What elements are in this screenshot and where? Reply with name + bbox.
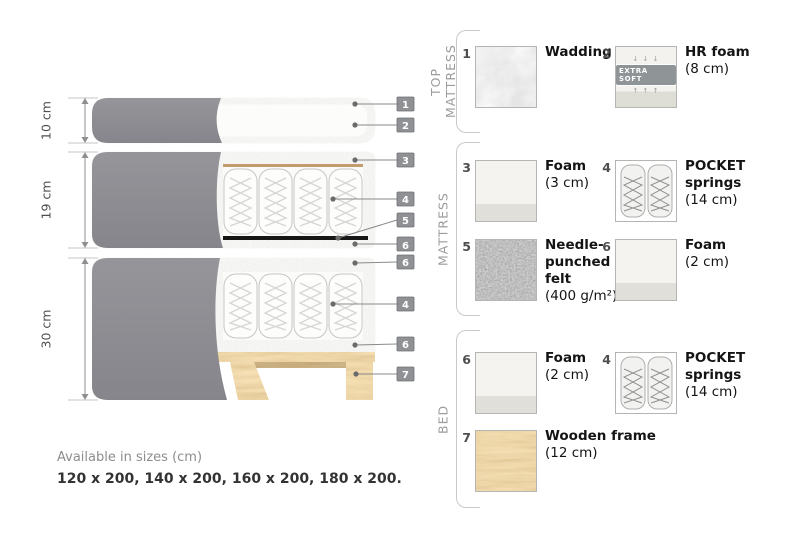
arrows-up-icon: ↑ ↑ ↑	[632, 87, 659, 95]
legend-item-number: 3	[455, 160, 471, 175]
legend-item-name: POCKET springs	[685, 158, 751, 192]
callout-number: 3	[402, 156, 409, 167]
callout-number: 4	[402, 300, 409, 311]
legend-item-foam-2cm: 6 Foam (2 cm)	[595, 239, 751, 301]
legend-item-number: 2	[595, 46, 611, 61]
pocket-springs-swatch	[615, 160, 677, 222]
callout-number: 5	[402, 216, 409, 227]
fabric-cover	[92, 258, 227, 400]
dimension-label-mattress: 19 cm	[39, 181, 54, 220]
legend-item-name: Foam	[685, 237, 751, 254]
legend-item-number: 1	[455, 46, 471, 61]
wood-swatch	[475, 430, 537, 492]
extra-soft-badge: EXTRA SOFT	[616, 65, 676, 85]
legend-item-foam-2cm-bed: 6 Foam (2 cm)	[455, 352, 611, 414]
arrows-down-icon: ↓ ↓ ↓	[632, 55, 659, 63]
legend-item-detail: (14 cm)	[685, 192, 751, 209]
legend-item-foam-3cm: 3 Foam (3 cm)	[455, 160, 611, 222]
legend-item-pocket-springs-bed: 4 POCKET springs (14 cm)	[595, 352, 751, 414]
page: 10 cm 19 cm 30 cm	[0, 0, 800, 533]
legend-item-detail: (2 cm)	[685, 254, 751, 271]
sizes-label: Available in sizes (cm)	[57, 450, 202, 465]
legend-item-name: Wooden frame	[545, 428, 656, 445]
sizes-value: 120 x 200, 140 x 200, 160 x 200, 180 x 2…	[57, 471, 402, 487]
legend-item-hr-foam: 2 ↓ ↓ ↓ EXTRA SOFT ↑ ↑ ↑ HR foam (8 cm)	[595, 46, 751, 108]
callout-number: 4	[402, 195, 409, 206]
callout-number: 2	[402, 121, 409, 132]
legend-item-number: 7	[455, 430, 471, 445]
legend-item-detail: (12 cm)	[545, 445, 656, 462]
legend-item-name: POCKET springs	[685, 350, 751, 384]
legend-item-name: HR foam	[685, 44, 751, 61]
top-liner	[223, 164, 363, 167]
felt-swatch	[475, 239, 537, 301]
callout-number: 1	[402, 100, 409, 111]
dimension-label-bed: 30 cm	[39, 310, 54, 349]
pocket-springs-swatch	[615, 352, 677, 414]
dimension-label-top-mattress: 10 cm	[39, 101, 54, 140]
fabric-cover	[92, 152, 223, 248]
callout-number: 6	[402, 340, 409, 351]
foam-swatch	[475, 160, 537, 222]
wadding-swatch	[475, 46, 537, 108]
wooden-leg-right	[346, 362, 373, 400]
legend-item-detail: (14 cm)	[685, 384, 751, 401]
legend-item-number: 4	[595, 160, 611, 175]
legend-item-number: 5	[455, 239, 471, 254]
legend-item-number: 6	[595, 239, 611, 254]
callout-number: 6	[402, 241, 409, 252]
dimension-mattress: 19 cm	[39, 152, 99, 248]
legend-item-pocket-springs: 4 POCKET springs (14 cm)	[595, 160, 751, 222]
legend-item-wadding: 1 Wadding	[455, 46, 611, 108]
wooden-rail	[218, 352, 375, 362]
bed-cross-section-diagram: 10 cm 19 cm 30 cm	[30, 78, 430, 418]
section-title-top-mattress: TOP MATTRESS	[433, 30, 453, 133]
foam-swatch	[475, 352, 537, 414]
legend-item-felt: 5 Needle-punched felt (400 g/m²)	[455, 239, 611, 305]
section-title-mattress: MATTRESS	[433, 142, 453, 316]
dimension-bed: 30 cm	[39, 258, 99, 400]
top-mattress-section	[92, 98, 375, 143]
felt-layer	[223, 236, 368, 240]
callout-number: 6	[402, 258, 409, 269]
legend-item-number: 4	[595, 352, 611, 367]
foam-swatch	[615, 239, 677, 301]
legend-item-number: 6	[455, 352, 471, 367]
section-title-bed: BED	[433, 330, 453, 508]
legend-item-detail: (8 cm)	[685, 61, 751, 78]
fabric-cover	[92, 98, 222, 143]
dimension-top-mattress: 10 cm	[39, 98, 99, 143]
legend-item-wooden-frame: 7 Wooden frame (12 cm)	[455, 430, 656, 492]
bed-section	[92, 258, 375, 400]
hr-foam-swatch: ↓ ↓ ↓ EXTRA SOFT ↑ ↑ ↑	[615, 46, 677, 108]
callout-number: 7	[402, 370, 409, 381]
